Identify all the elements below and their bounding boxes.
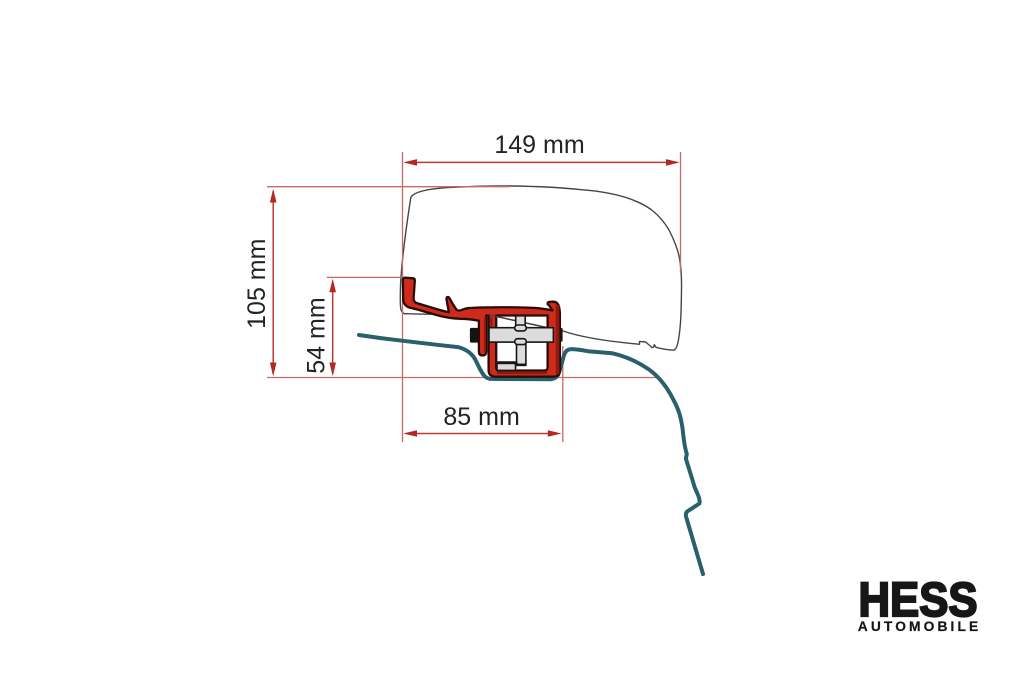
- svg-text:149 mm: 149 mm: [494, 131, 584, 159]
- svg-text:85 mm: 85 mm: [443, 403, 519, 431]
- svg-text:105 mm: 105 mm: [243, 239, 271, 329]
- svg-text:AUTOMOBILE: AUTOMOBILE: [858, 619, 979, 634]
- svg-text:54 mm: 54 mm: [303, 297, 331, 373]
